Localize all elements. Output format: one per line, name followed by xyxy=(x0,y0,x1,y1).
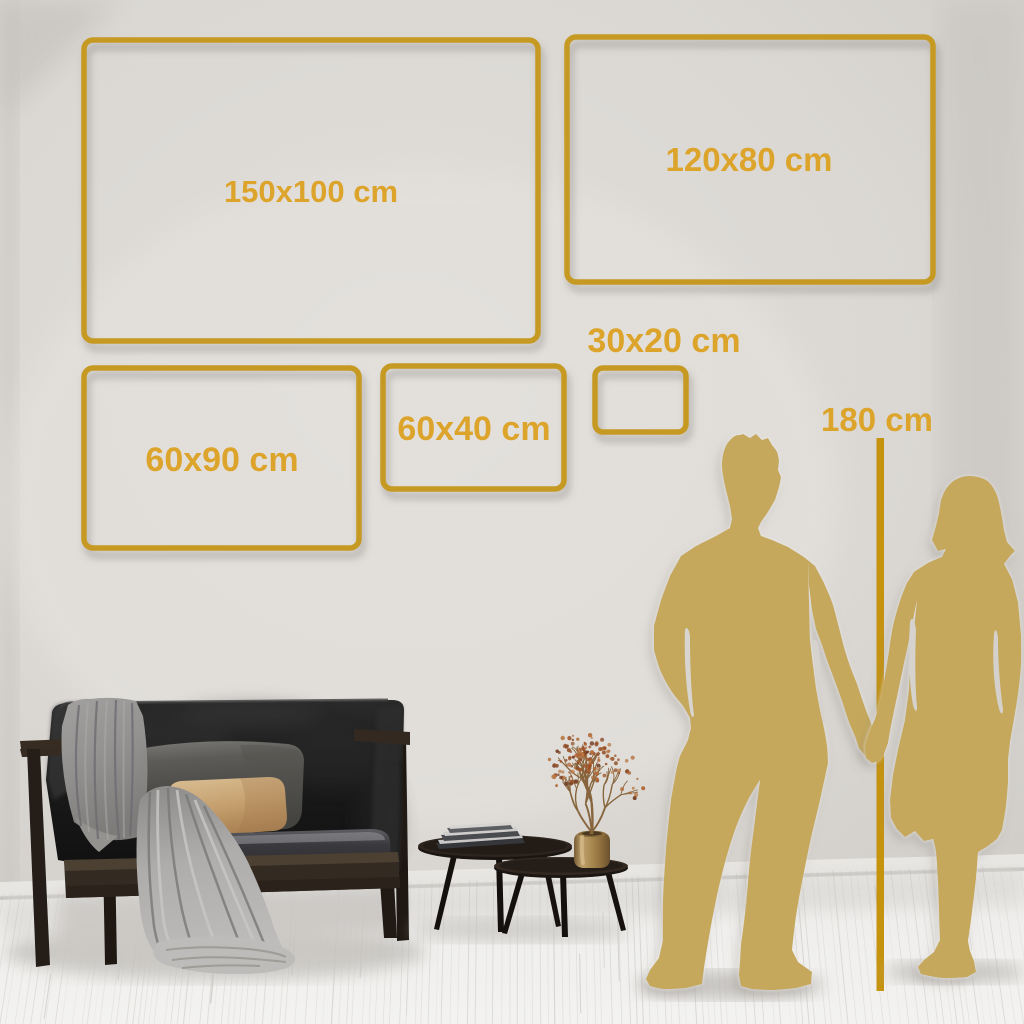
svg-text:60x90 cm: 60x90 cm xyxy=(145,441,298,479)
svg-text:150x100 cm: 150x100 cm xyxy=(224,174,398,209)
svg-text:60x40 cm: 60x40 cm xyxy=(397,410,550,448)
svg-text:180 cm: 180 cm xyxy=(821,401,933,438)
svg-text:30x20 cm: 30x20 cm xyxy=(587,322,740,360)
svg-text:120x80 cm: 120x80 cm xyxy=(666,141,833,178)
